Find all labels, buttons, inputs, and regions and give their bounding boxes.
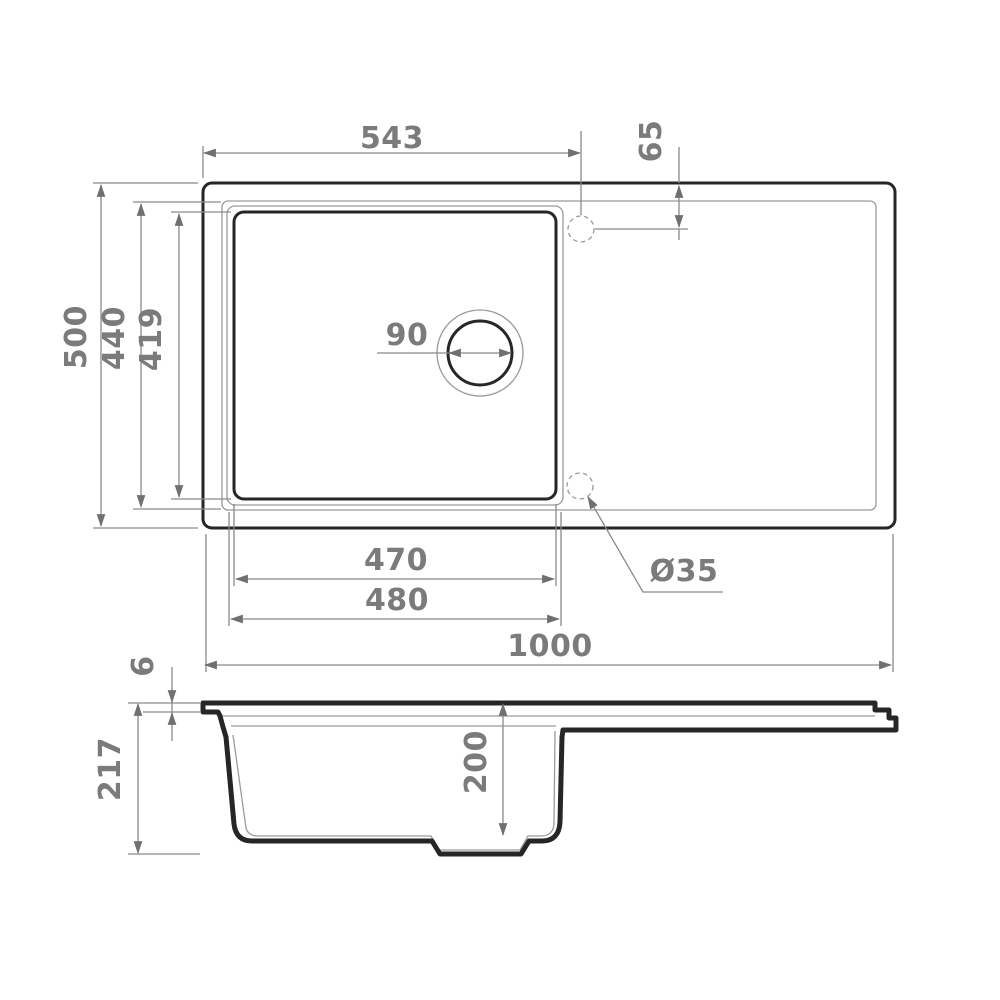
dim-label-217: 217 <box>93 737 128 801</box>
dim-label-90: 90 <box>386 318 429 353</box>
sink-technical-drawing: 543 65 500 440 419 90 470 480 1000 Ø35 <box>0 0 1000 1000</box>
section-view: 6 217 200 <box>93 655 896 854</box>
sink-rim-inner-edge <box>222 201 876 510</box>
section-bowl-inner-surface <box>233 731 555 850</box>
top-view-outlines <box>203 183 895 528</box>
dim-label-440: 440 <box>97 306 132 370</box>
dim-label-470: 470 <box>364 543 428 578</box>
dim-label-1000: 1000 <box>507 629 593 664</box>
sink-outer-edge <box>203 183 895 528</box>
tap-hole-bottom <box>567 473 593 499</box>
section-dimensions <box>128 667 503 854</box>
dim-label-65: 65 <box>634 120 669 163</box>
bowl-inner-edge <box>234 212 556 499</box>
dim-label-6: 6 <box>126 655 161 676</box>
dim-label-419: 419 <box>134 307 169 371</box>
tap-hole-top <box>568 216 594 242</box>
top-view-thin-edges <box>222 201 876 510</box>
section-thin-edges <box>222 716 875 850</box>
top-view: 543 65 500 440 419 90 470 480 1000 Ø35 <box>59 120 895 672</box>
dim-label-200: 200 <box>459 730 494 794</box>
dim-label-tap-hole-diameter: Ø35 <box>650 554 719 589</box>
section-dim-labels: 6 217 200 <box>93 655 494 801</box>
dim-label-480: 480 <box>365 583 429 618</box>
dim-label-500: 500 <box>59 305 94 369</box>
dim-label-543: 543 <box>360 121 424 156</box>
